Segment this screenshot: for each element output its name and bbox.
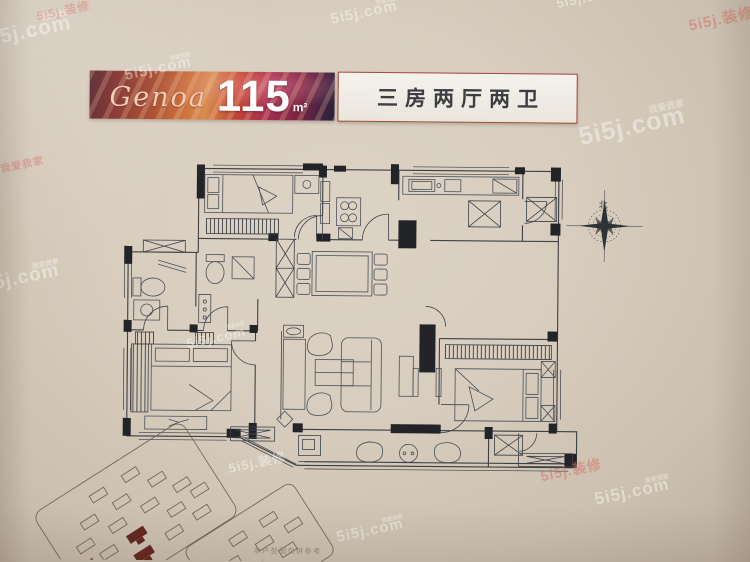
main-balcony xyxy=(356,442,460,463)
scene: Genoa 115 m² 三房两厅两卫 xyxy=(0,0,750,562)
dining-area xyxy=(297,251,387,296)
floor-plan-svg: 北 xyxy=(0,0,750,562)
bedroom-third xyxy=(455,361,556,422)
compass-north-label: 北 xyxy=(599,200,608,210)
disclaimer-text: 本户型图仅供参考 xyxy=(254,546,322,557)
furniture xyxy=(131,174,556,464)
bedroom-secondary xyxy=(205,175,319,214)
photo-backdrop: Genoa 115 m² 三房两厅两卫 xyxy=(0,0,750,562)
windows xyxy=(123,164,571,471)
walls-structural xyxy=(122,162,579,468)
compass: 北 xyxy=(566,190,643,263)
entry-corridor xyxy=(320,182,329,224)
site-key-plan-large xyxy=(32,420,240,562)
walls-thin xyxy=(126,168,579,468)
living-area xyxy=(277,325,442,428)
master-bedroom xyxy=(145,344,232,430)
bathroom-master xyxy=(199,254,255,322)
doors xyxy=(143,198,547,451)
bathroom-guest xyxy=(133,260,187,320)
